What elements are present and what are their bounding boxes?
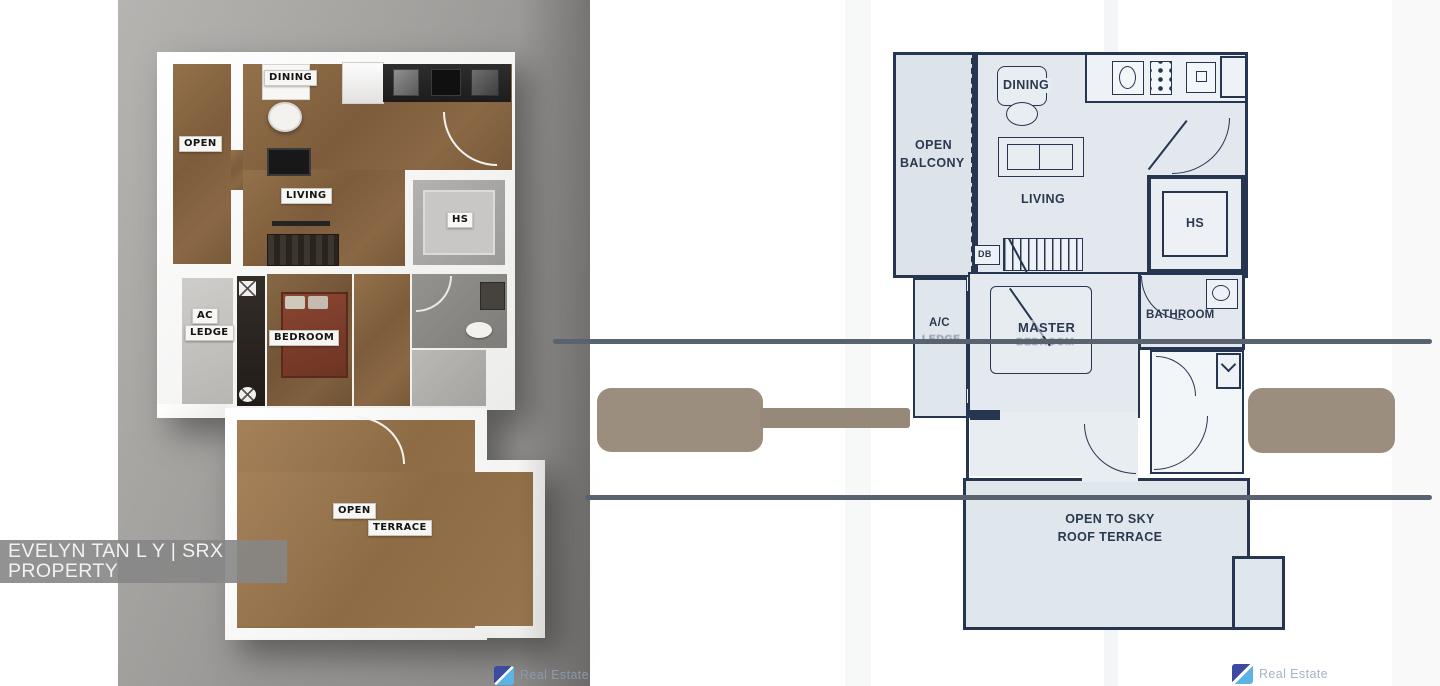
fridge [342,62,384,104]
bp-label-balcony-line1: OPEN [915,138,952,153]
render-plan-panel: DINING LIVING OPEN HS AC LEDGE BEDROOM [118,0,590,686]
real-estate-logo-text: Real Estate [520,669,589,682]
bp-kitchen-sink [1112,61,1144,95]
bp-sofa [998,137,1084,177]
basin-oval [1212,285,1230,301]
brand-logo-left: Real Estate [494,666,589,685]
pillow [285,296,305,309]
real-estate-logo-icon [494,666,514,685]
redaction-block-left [597,388,763,452]
bp-label-terrace-line2: ROOF TERRACE [1040,530,1180,545]
room-open-balcony [173,64,231,264]
ledge-wall [157,404,227,418]
shower-area [412,350,486,406]
wardrobe-fan-icon [239,281,256,296]
bp-label-hs: HS [1186,216,1204,231]
redaction-block-right [1248,388,1395,453]
kitchen-sink [393,69,419,96]
room-ac-ledge [182,278,233,404]
label-terrace-line2: TERRACE [368,520,432,536]
label-dining: DINING [264,70,317,86]
label-hs: HS [447,212,473,228]
bp-label-dining: DINING [1001,78,1051,93]
bp-db-box: DB [974,245,1000,265]
bp-terrace-patch [1235,560,1247,626]
wardrobe-fan-icon [239,387,256,402]
bp-terrace-opening [1082,476,1138,482]
label-open: OPEN [179,136,222,152]
bp-bathroom-sink [1206,279,1238,309]
bp-roof-terrace [963,478,1250,630]
agent-watermark-text: EVELYN TAN L Y | SRX PROPERTY [8,542,287,581]
divider-line-lower [585,495,1432,500]
bp-room-ac [913,278,968,418]
label-terrace-line1: OPEN [333,503,376,519]
shower-chevron [1221,357,1237,373]
listing-image: DINING LIVING OPEN HS AC LEDGE BEDROOM [0,0,1440,686]
bp-stove [1150,61,1172,95]
tv-console [267,148,311,176]
bp-wardrobe [1003,238,1083,271]
bp-label-db: DB [978,249,992,260]
dining-table [268,102,302,132]
bp-dining-chair [1006,102,1038,126]
bp-label-terrace-line1: OPEN TO SKY [1040,512,1180,527]
label-ac-line1: AC [192,308,218,324]
bp-kitchen-appliance [1186,62,1216,93]
agent-watermark: EVELYN TAN L Y | SRX PROPERTY [0,540,287,583]
wardrobe-diagonal [1008,238,1028,272]
label-bedroom: BEDROOM [269,330,339,346]
real-estate-logo-icon [1232,664,1253,684]
balcony-dashed-edge [971,58,973,272]
sofa [267,234,339,266]
bp-label-balcony-line2: BALCONY [900,156,965,171]
bp-label-master: MASTER [1016,320,1077,336]
sofa-divider [1039,144,1040,170]
label-ac-line2: LEDGE [185,325,234,341]
bp-wall-nub [970,410,1000,420]
brand-logo-right: Real Estate [1232,664,1328,684]
real-estate-logo-text: Real Estate [1259,668,1328,681]
divider-line-upper [553,339,1432,344]
bp-wall-left [966,412,969,480]
toilet [466,322,492,338]
sink-basin [1119,66,1136,89]
coffee-bench [272,221,330,226]
appliance-inner [1196,71,1207,82]
appliance [471,69,499,96]
label-living: LIVING [281,188,332,204]
bp-label-living: LIVING [1021,192,1065,207]
pillow [308,296,328,309]
bp-corner-shaft [1220,56,1247,98]
stove [431,69,461,96]
kitchen-counter [383,64,511,102]
redaction-bar [760,408,910,428]
door-gap [231,150,243,190]
hallway [354,274,410,406]
bp-shower-box [1216,353,1241,389]
bp-label-ac: A/C [929,317,950,331]
bathroom-vanity [480,282,505,310]
